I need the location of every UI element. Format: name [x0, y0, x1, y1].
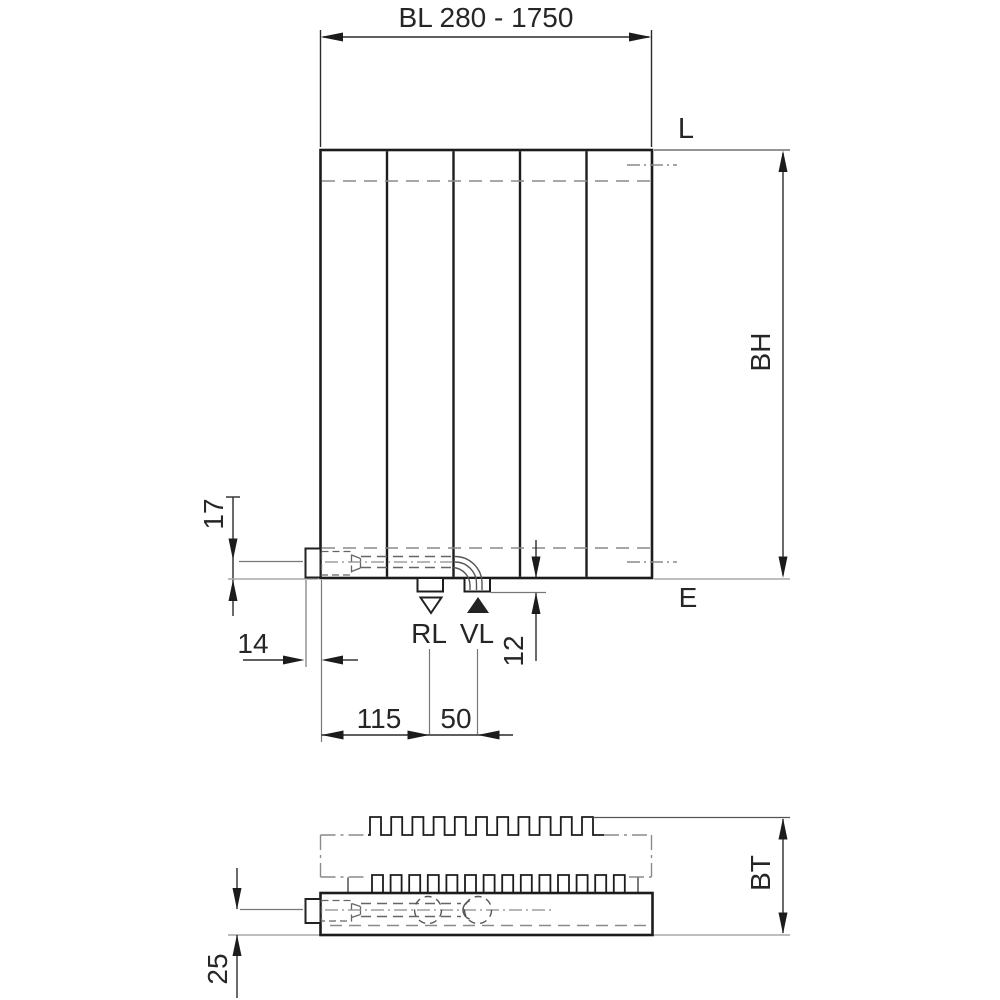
bh-dimension-label: BH	[745, 333, 776, 372]
dim-25	[233, 868, 304, 998]
fin-row-upper	[368, 817, 604, 835]
valve-block-top	[306, 899, 321, 923]
dim-14-label: 14	[237, 628, 268, 659]
arrow-down-icon	[779, 557, 788, 579]
arrow-right-icon	[629, 33, 652, 42]
bl-dimension	[321, 30, 652, 147]
dim-115-50	[322, 649, 514, 740]
dim-17-label: 17	[198, 498, 229, 529]
dim-17	[226, 497, 318, 616]
dim-115-label: 115	[357, 703, 402, 734]
phantom-outline	[321, 835, 652, 877]
vl-label: VL	[460, 618, 494, 649]
rl-triangle-icon	[421, 598, 442, 614]
technical-drawing: BL 280 - 1750 L E BH	[0, 0, 1000, 1000]
fin-row-lower	[372, 875, 625, 893]
bt-dimension-label: BT	[745, 855, 776, 891]
valve-block	[306, 549, 321, 578]
rl-label: RL	[411, 618, 447, 649]
bottom-level-label: E	[679, 582, 698, 613]
vl-triangle-icon	[467, 597, 489, 613]
arrow-up-icon	[779, 151, 788, 173]
dim-14	[243, 580, 358, 742]
connection-stubs	[418, 578, 491, 592]
radiator-body	[321, 150, 653, 578]
bl-dimension-label: BL 280 - 1750	[399, 2, 574, 33]
arrow-left-icon	[321, 33, 344, 42]
top-level-label: L	[678, 113, 694, 145]
top-view: 25 BT	[202, 817, 790, 998]
front-view: BL 280 - 1750 L E BH	[198, 2, 790, 742]
vl-stub	[465, 578, 491, 592]
dim-25-label: 25	[202, 953, 233, 984]
rl-stub	[418, 578, 444, 592]
dim-50-label: 50	[440, 703, 471, 734]
dim-12-label: 12	[498, 635, 529, 666]
